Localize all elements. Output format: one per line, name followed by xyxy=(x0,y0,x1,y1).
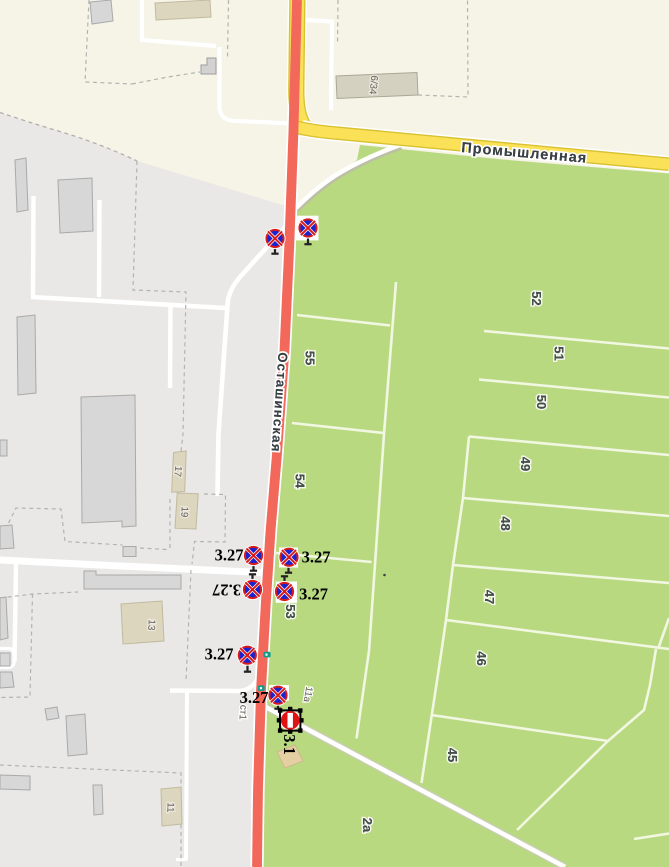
svg-text:3.27: 3.27 xyxy=(212,581,241,600)
svg-text:19: 19 xyxy=(178,506,190,517)
svg-text:52: 52 xyxy=(529,291,544,305)
svg-text:6/34: 6/34 xyxy=(367,75,380,96)
svg-text:47: 47 xyxy=(482,590,497,604)
svg-text:3.27: 3.27 xyxy=(205,645,234,664)
svg-text:55: 55 xyxy=(303,351,318,365)
svg-text:2а: 2а xyxy=(360,818,375,833)
svg-text:17: 17 xyxy=(171,465,183,477)
svg-text:3.27: 3.27 xyxy=(240,688,269,707)
svg-text:48: 48 xyxy=(498,516,513,530)
svg-text:45: 45 xyxy=(445,748,460,762)
svg-text:3.27: 3.27 xyxy=(215,546,244,565)
svg-text:13: 13 xyxy=(145,619,157,631)
svg-text:3.27: 3.27 xyxy=(299,585,328,604)
svg-text:49: 49 xyxy=(518,457,533,471)
svg-text:50: 50 xyxy=(534,395,549,409)
svg-text:46: 46 xyxy=(474,651,489,665)
svg-text:3.1: 3.1 xyxy=(280,734,299,755)
svg-text:54: 54 xyxy=(293,474,308,489)
svg-text:51: 51 xyxy=(552,346,567,360)
svg-text:11: 11 xyxy=(164,802,175,813)
svg-text:3.27: 3.27 xyxy=(302,548,331,567)
svg-text:53: 53 xyxy=(283,604,298,618)
